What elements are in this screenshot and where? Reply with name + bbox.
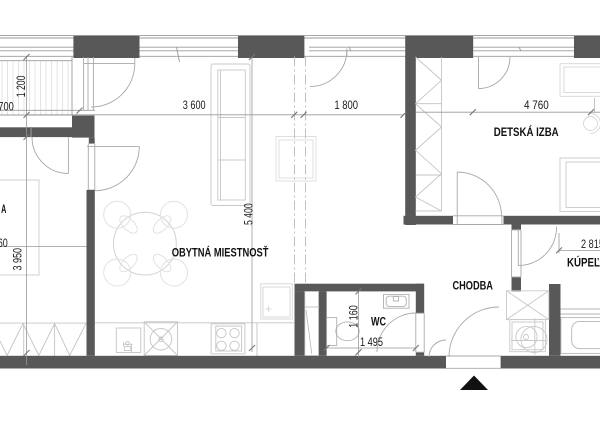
svg-text:700: 700 xyxy=(0,100,14,114)
svg-text:4 760: 4 760 xyxy=(524,98,549,112)
svg-text:OBYTNÁ MIESTNOSŤ: OBYTNÁ MIESTNOSŤ xyxy=(172,245,269,259)
svg-text:CHODBA: CHODBA xyxy=(452,279,493,293)
svg-text:1 200: 1 200 xyxy=(14,75,28,97)
svg-text:KÚPEĽŇA: KÚPEĽŇA xyxy=(567,255,600,269)
svg-text:A: A xyxy=(1,202,6,216)
svg-text:1 800: 1 800 xyxy=(334,98,358,112)
svg-text:2 815: 2 815 xyxy=(581,237,600,251)
svg-text:DETSKÁ IZBA: DETSKÁ IZBA xyxy=(494,125,559,139)
svg-text:5 400: 5 400 xyxy=(242,203,256,225)
svg-text:3 950: 3 950 xyxy=(11,248,25,271)
svg-text:1 160: 1 160 xyxy=(346,305,360,328)
svg-text:WC: WC xyxy=(371,315,386,329)
svg-text:760: 760 xyxy=(0,236,8,250)
svg-text:3 600: 3 600 xyxy=(183,98,206,112)
svg-text:1 495: 1 495 xyxy=(360,335,383,349)
